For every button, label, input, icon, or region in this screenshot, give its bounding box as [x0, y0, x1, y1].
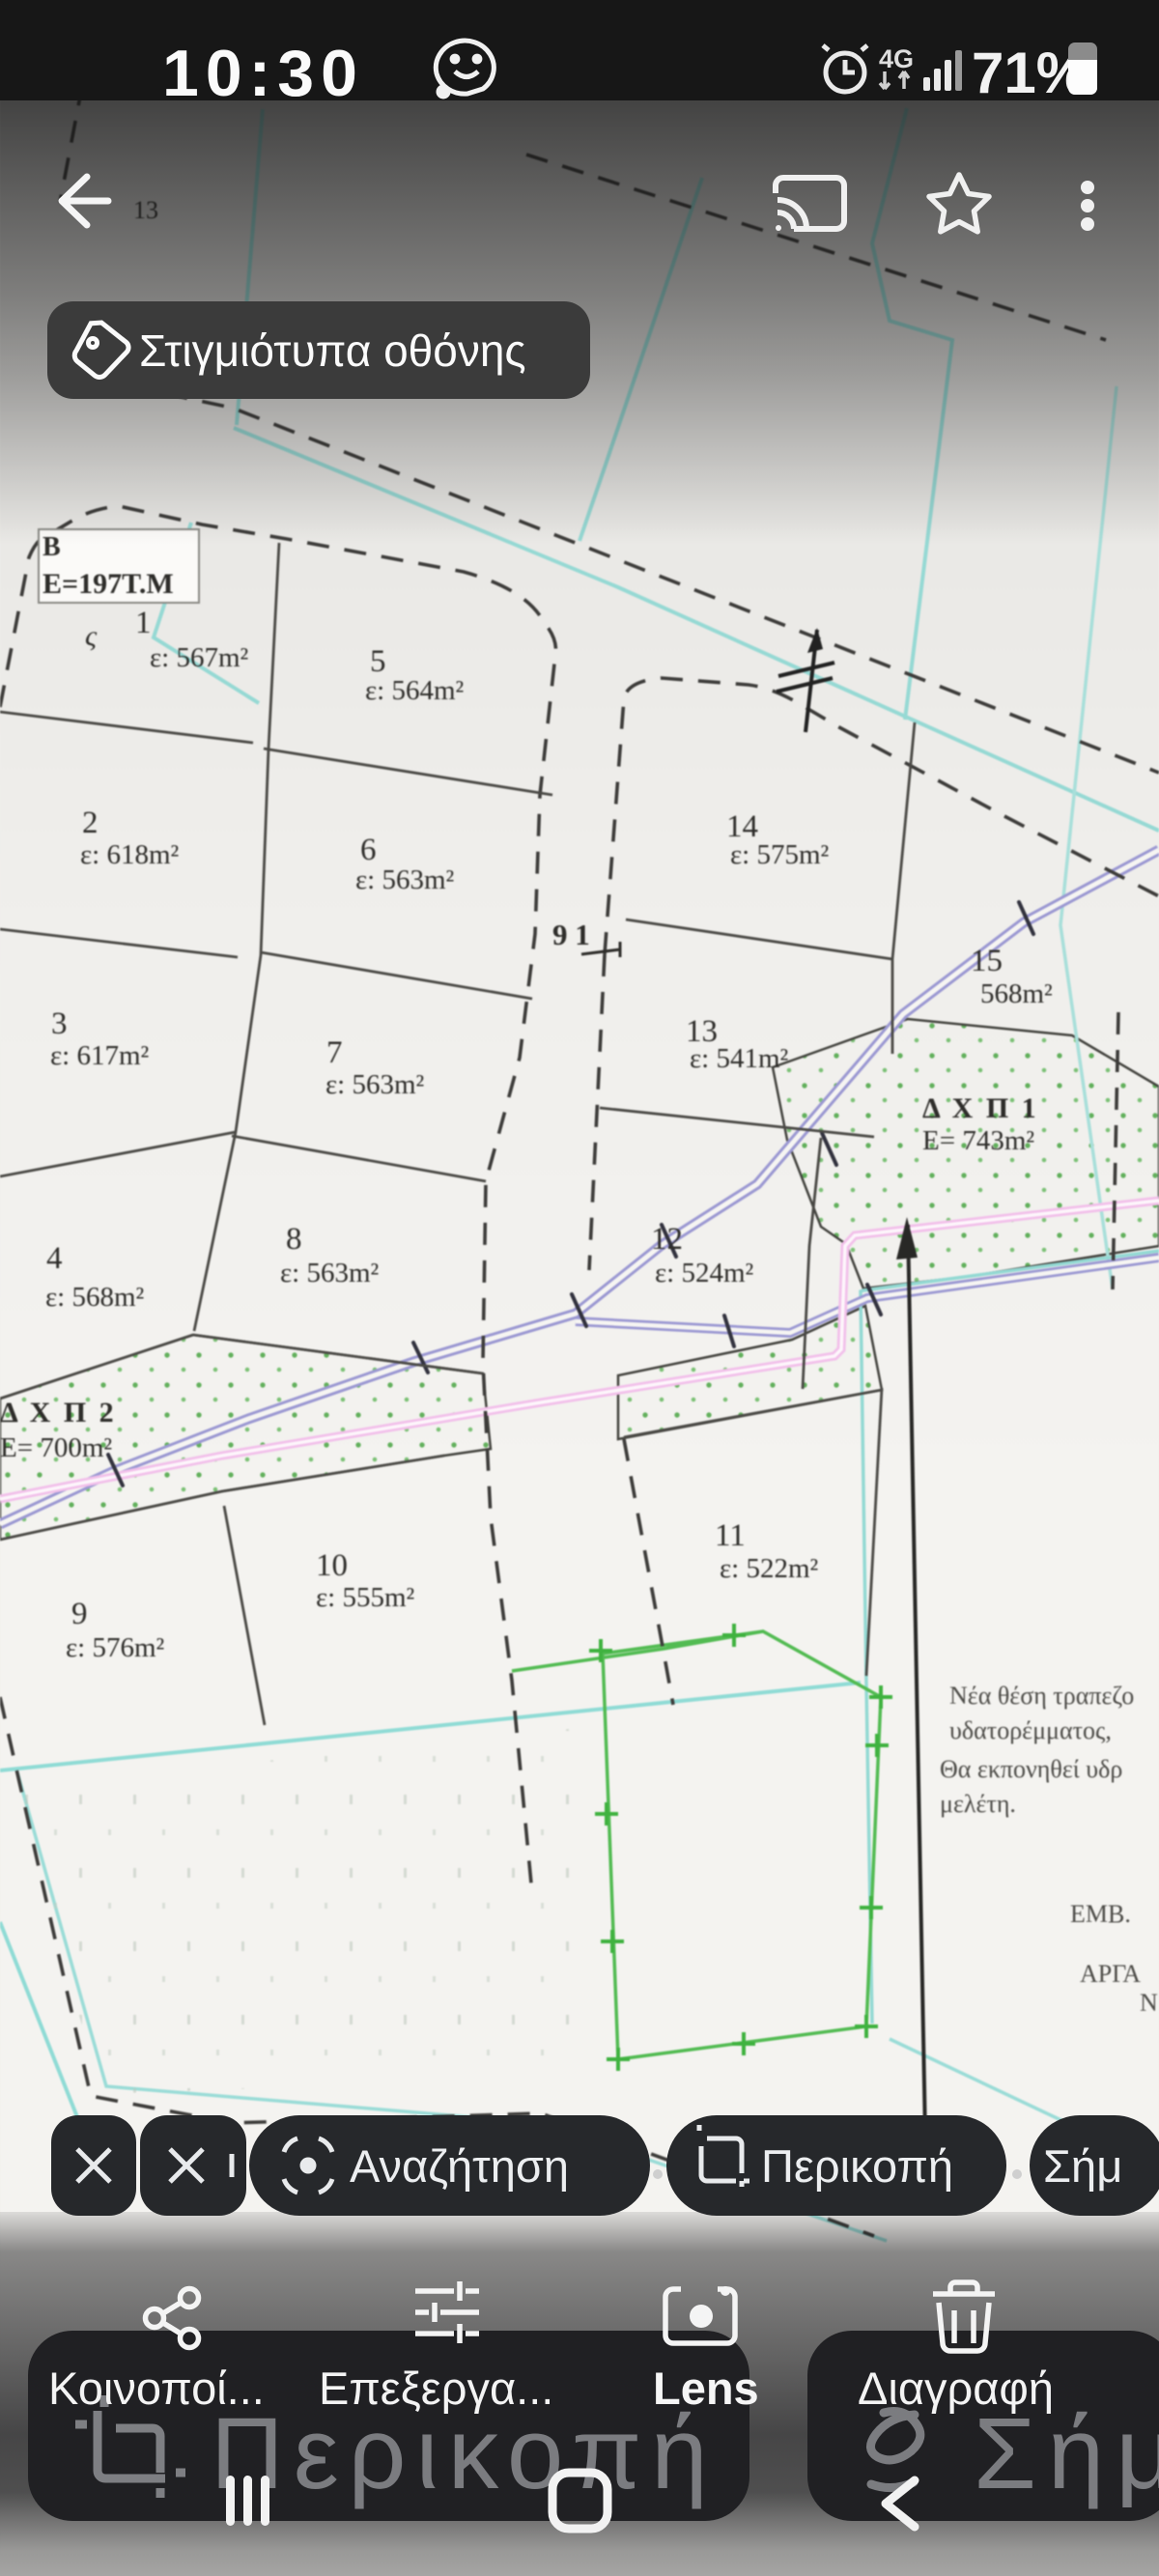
svg-text:Στιγμιότυπα οθόνης: Στιγμιότυπα οθόνης [139, 326, 526, 376]
svg-text:Lens: Lens [653, 2363, 759, 2414]
svg-text:Σήμ: Σήμ [1043, 2140, 1122, 2192]
svg-text:Κοινοποί...: Κοινοποί... [48, 2363, 265, 2414]
svg-text:10:30: 10:30 [162, 37, 364, 110]
svg-text:Σήμ: Σήμ [974, 2397, 1159, 2510]
svg-text:Περικοπή: Περικοπή [761, 2140, 953, 2192]
svg-text:Επεξεργα...: Επεξεργα... [319, 2363, 553, 2414]
svg-text:4G: 4G [879, 44, 914, 73]
svg-text:Περικοπή: Περικοπή [211, 2397, 718, 2510]
svg-text:Διαγραφή: Διαγραφή [858, 2363, 1054, 2414]
svg-text:Αναζήτηση: Αναζήτηση [350, 2140, 569, 2192]
